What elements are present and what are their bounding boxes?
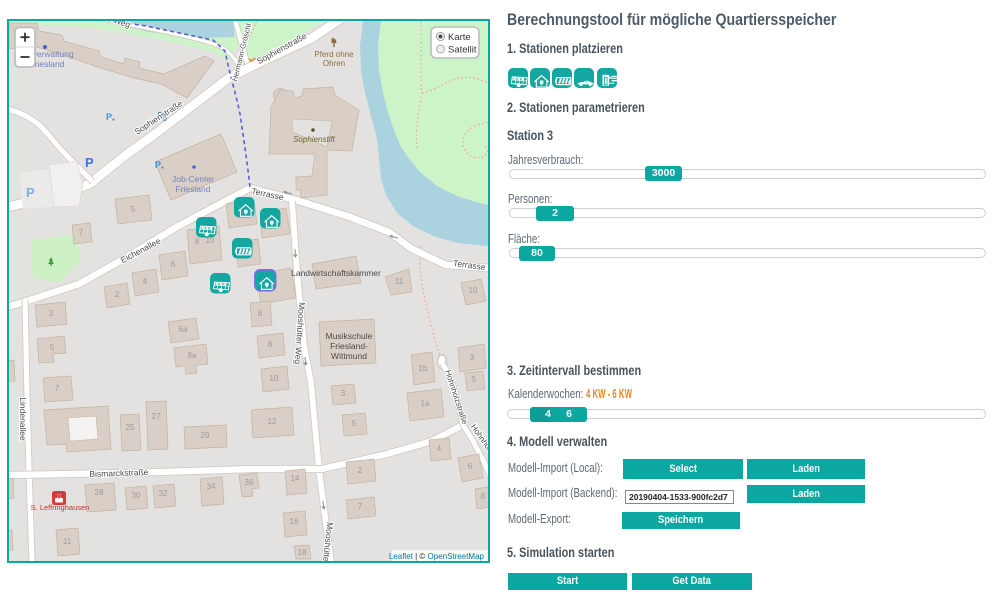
svg-text:Ohren: Ohren [323, 59, 345, 68]
svg-text:5: 5 [472, 375, 477, 384]
svg-text:Karte: Karte [448, 32, 471, 43]
svg-text:2: 2 [115, 290, 120, 299]
svg-text:6: 6 [258, 309, 263, 318]
svg-text:36: 36 [245, 478, 254, 487]
svg-text:1a: 1a [421, 399, 430, 408]
svg-text:25: 25 [126, 423, 135, 432]
svg-text:7: 7 [55, 384, 60, 393]
svg-text:P: P [26, 185, 35, 200]
svg-text:6: 6 [468, 462, 473, 471]
svg-text:4: 4 [143, 277, 148, 286]
svg-text:Sophienstift: Sophienstift [293, 135, 336, 144]
svg-text:10: 10 [270, 374, 279, 383]
svg-text:5: 5 [352, 419, 357, 428]
svg-text:Bismarckstraße: Bismarckstraße [89, 467, 149, 479]
svg-text:Lindenallee: Lindenallee [18, 397, 28, 441]
svg-text:14: 14 [291, 474, 300, 483]
svg-text:6a: 6a [179, 325, 188, 334]
svg-text:16: 16 [290, 517, 299, 526]
svg-text:12: 12 [268, 417, 277, 426]
svg-text:29: 29 [201, 431, 210, 440]
svg-text:Pferd ohne: Pferd ohne [314, 50, 354, 59]
svg-text:8: 8 [481, 492, 486, 501]
svg-text:Friesland-: Friesland- [330, 341, 368, 351]
svg-text:3: 3 [341, 389, 346, 398]
svg-text:Satellit: Satellit [448, 45, 477, 56]
svg-text:5: 5 [50, 343, 55, 352]
svg-text:3: 3 [49, 309, 54, 318]
svg-text:Landwirtschaftskammer: Landwirtschaftskammer [291, 268, 381, 278]
svg-text:28: 28 [95, 488, 104, 497]
svg-text:Friesland: Friesland [176, 184, 211, 194]
svg-text:2: 2 [358, 466, 363, 475]
svg-text:11: 11 [395, 277, 404, 286]
svg-text:Musikschule: Musikschule [326, 331, 373, 341]
svg-text:18: 18 [298, 548, 307, 557]
svg-text:7: 7 [79, 228, 84, 237]
svg-text:Leaflet | © OpenStreetMap: Leaflet | © OpenStreetMap [389, 552, 485, 561]
svg-text:1b: 1b [419, 364, 428, 373]
svg-text:8: 8 [268, 340, 273, 349]
svg-text:S. Leffringhausen: S. Leffringhausen [31, 503, 90, 512]
svg-text:10: 10 [469, 286, 478, 295]
svg-text:P: P [85, 155, 94, 170]
svg-text:6: 6 [171, 260, 176, 269]
svg-text:7: 7 [358, 502, 363, 511]
svg-text:11: 11 [63, 537, 72, 546]
svg-text:27: 27 [152, 412, 161, 421]
svg-text:Wittmund: Wittmund [331, 351, 367, 361]
svg-text:8a: 8a [188, 351, 197, 360]
svg-text:3: 3 [470, 353, 475, 362]
svg-text:4: 4 [437, 444, 442, 453]
svg-text:34: 34 [207, 482, 216, 491]
svg-text:30: 30 [132, 491, 141, 500]
svg-text:32: 32 [159, 489, 168, 498]
svg-text:8: 8 [195, 237, 200, 246]
svg-text:Job-Center: Job-Center [172, 174, 214, 184]
svg-text:5: 5 [131, 205, 136, 214]
